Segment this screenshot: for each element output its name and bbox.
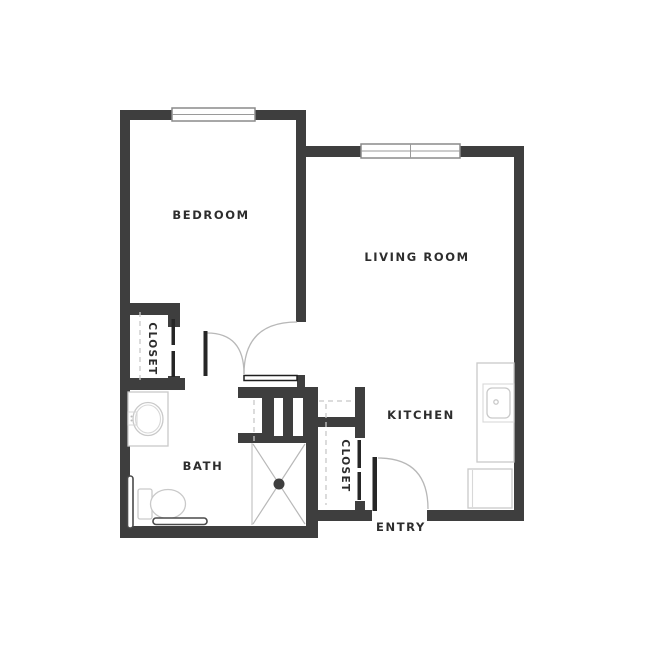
bedroom-living-divider-wall (296, 110, 306, 322)
wet-wall-niche-right (293, 398, 303, 436)
entry-closet-top-wall (318, 417, 355, 427)
toilet-bowl (151, 490, 186, 519)
bedroom-door-jamb (297, 375, 305, 387)
wet-wall-niche-left (274, 398, 283, 436)
bedroom-closet-door-panel-1 (172, 319, 176, 345)
bottom-wall-right (427, 510, 524, 521)
grab-bar-vertical-icon (128, 476, 134, 528)
entry-closet-door-panel-1 (358, 440, 362, 468)
bedroom-door-swing-arc (244, 322, 297, 374)
bath-bottom-wall (120, 526, 318, 538)
kitchen-fixtures (468, 363, 514, 508)
sink-faucet-dot (494, 400, 498, 404)
kitchen-label: KITCHEN (387, 408, 455, 422)
entry-label: ENTRY (376, 520, 426, 534)
wet-wall-top (238, 387, 318, 398)
floor-plan-canvas: BEDROOM LIVING ROOM KITCHEN BATH ENTRY C… (0, 0, 650, 650)
wet-wall-block (262, 398, 318, 443)
entry-closet-label: CLOSET (339, 439, 351, 492)
shower-drain-icon (274, 479, 285, 490)
shower-with-drain (252, 443, 305, 525)
kitchen-sink-icon (483, 384, 514, 422)
living-room-label: LIVING ROOM (364, 250, 469, 264)
refrigerator-body (468, 469, 512, 508)
entry-door-leaf (373, 457, 378, 511)
faucet-dot-2 (131, 420, 133, 422)
bedroom-closet-label: CLOSET (146, 322, 158, 375)
bedroom-top-wall-left (120, 110, 173, 120)
faucet-dot-1 (131, 416, 133, 418)
bath-vanity-sink-icon (128, 392, 168, 446)
walls (120, 110, 524, 538)
entry-closet-jamb-bottom (355, 501, 365, 512)
wet-wall-lower-bar (238, 433, 266, 443)
east-wall (514, 146, 524, 521)
grab-bar-horizontal-icon (153, 518, 207, 525)
entry-door-swing-arc (378, 458, 428, 509)
entry-closet-east-wall (355, 387, 365, 438)
bedroom-label: BEDROOM (172, 208, 249, 222)
bath-label: BATH (183, 459, 224, 473)
entry-closet-door-panel-2 (358, 472, 362, 500)
living-top-wall-left (306, 146, 362, 157)
bedroom-window (172, 108, 255, 121)
refrigerator-icon (468, 469, 512, 508)
bedroom-closet-jamb-bottom (168, 376, 180, 390)
floor-plan: BEDROOM LIVING ROOM KITCHEN BATH ENTRY C… (0, 0, 650, 650)
west-wall (120, 110, 130, 538)
bath-door-swing-arc (207, 333, 244, 374)
bedroom-closet-door-panel-2 (172, 351, 176, 377)
bath-door-leaf (204, 331, 208, 376)
toilet-icon (138, 489, 186, 519)
bedroom-door-leaf (244, 376, 297, 381)
living-room-window (361, 144, 460, 158)
